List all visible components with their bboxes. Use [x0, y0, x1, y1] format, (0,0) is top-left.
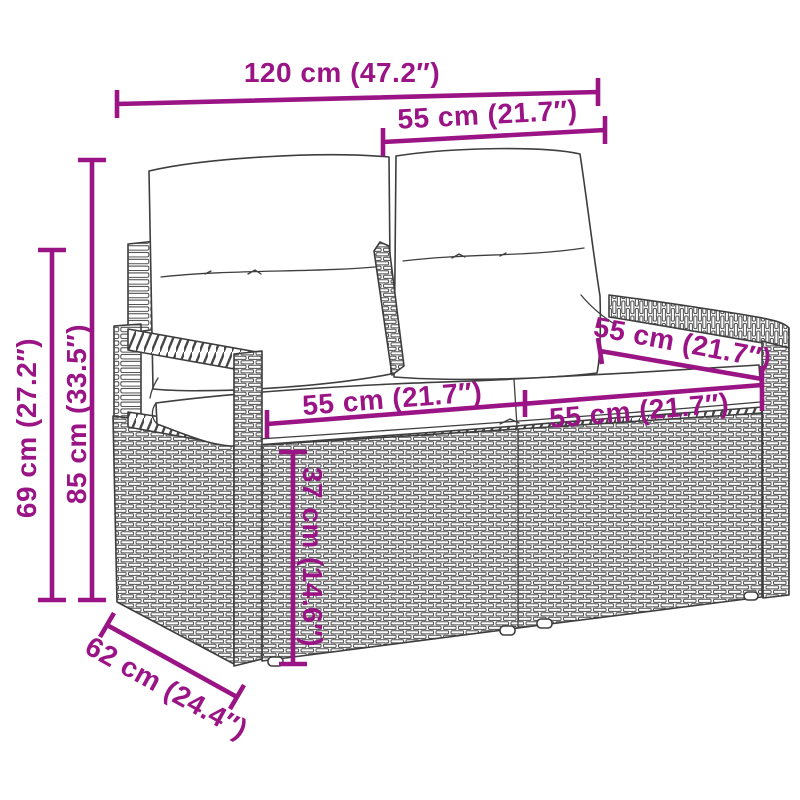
dim-back-section-width-label: 55 cm (21.7″) [397, 94, 579, 134]
back-cushion-left [149, 155, 391, 398]
dim-back-section-width: 55 cm (21.7″) [383, 94, 605, 156]
product-dimension-image: 120 cm (47.2″) 55 cm (21.7″) 85 cm (33.5… [0, 0, 800, 800]
dim-total-height: 85 cm (33.5″) [61, 160, 106, 600]
dim-arm-height-label: 69 cm (27.2″) [11, 338, 42, 518]
dim-seat-height-label: 37 cm (14.6″) [297, 467, 328, 647]
sofa-dimension-diagram: 120 cm (47.2″) 55 cm (21.7″) 85 cm (33.5… [0, 0, 800, 800]
dim-total-height-label: 85 cm (33.5″) [61, 324, 92, 504]
dim-total-width-label: 120 cm (47.2″) [244, 57, 440, 88]
dim-arm-height: 69 cm (27.2″) [11, 250, 66, 600]
back-cushion-right [394, 149, 616, 380]
